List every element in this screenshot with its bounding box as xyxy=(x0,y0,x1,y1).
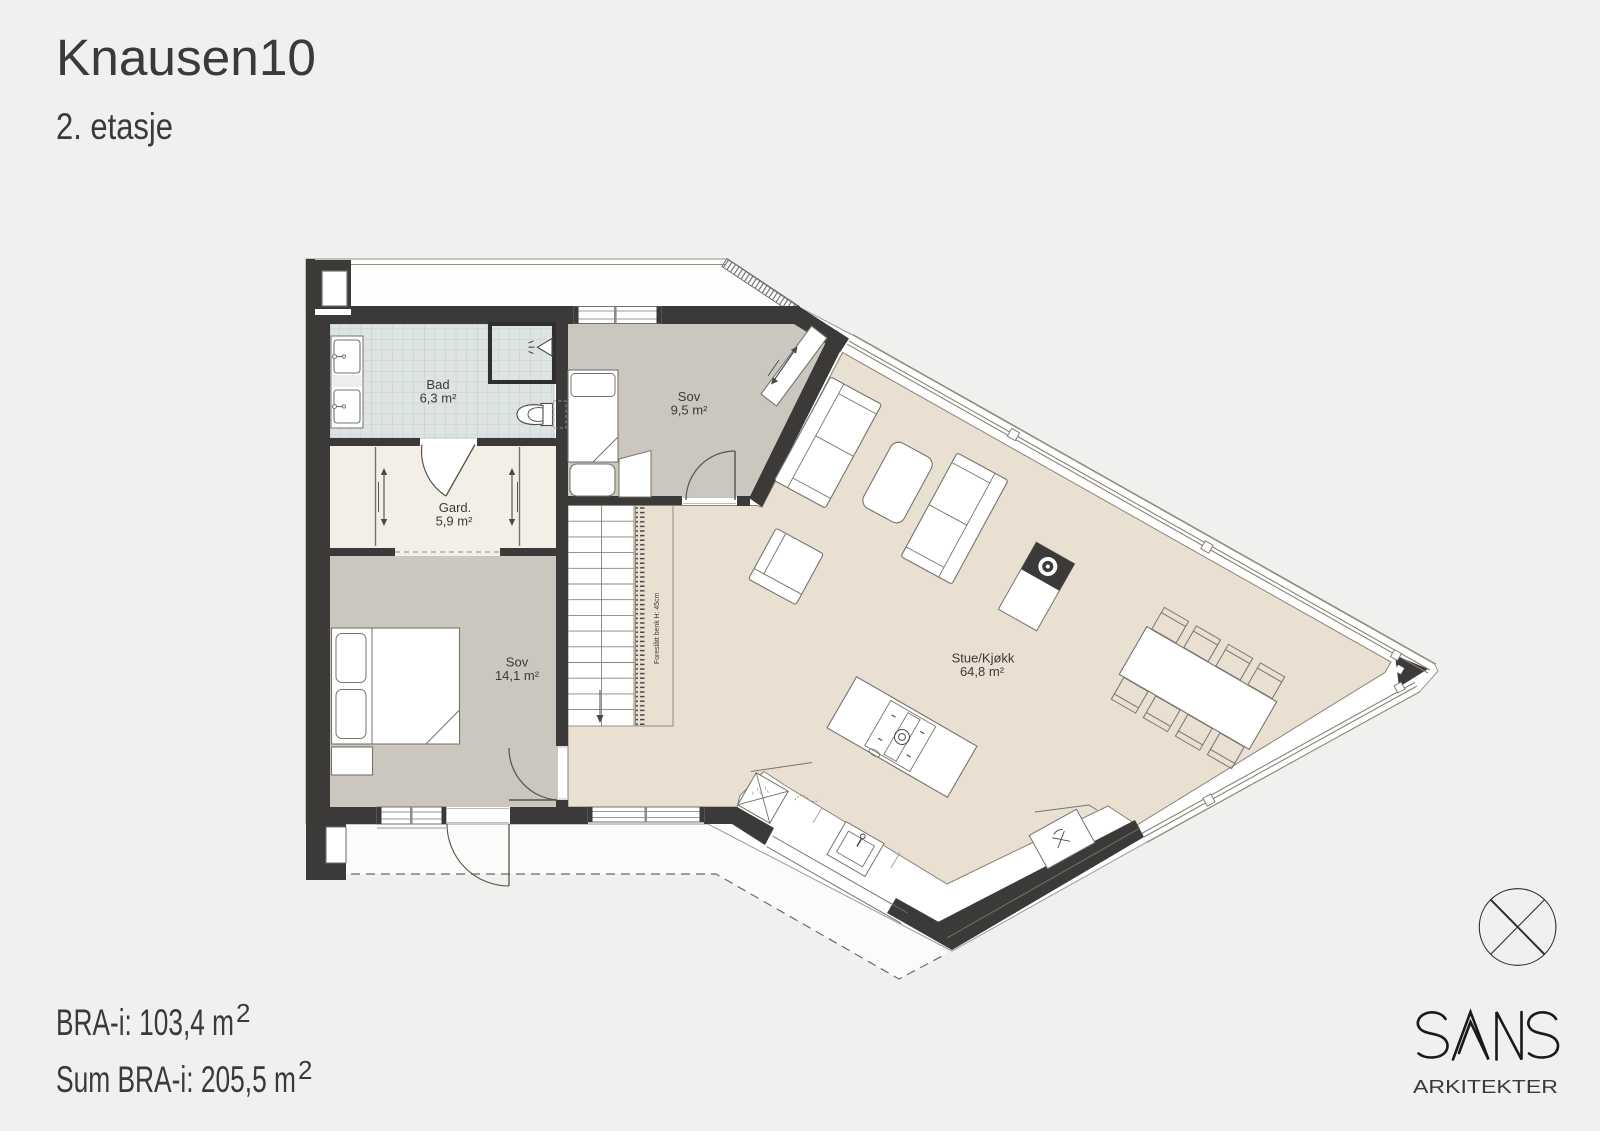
svg-text:64,8 m²: 64,8 m² xyxy=(960,664,1005,679)
svg-text:6,3 m²: 6,3 m² xyxy=(420,391,458,406)
svg-text:Sum BRA-i: 205,5 m: Sum BRA-i: 205,5 m xyxy=(56,1059,296,1100)
svg-text:2: 2 xyxy=(236,998,250,1028)
svg-text:BRA-i: 103,4 m: BRA-i: 103,4 m xyxy=(56,1002,234,1043)
svg-text:2: 2 xyxy=(298,1055,312,1085)
svg-text:5,9 m²: 5,9 m² xyxy=(436,514,474,529)
svg-text:9,5 m²: 9,5 m² xyxy=(671,403,709,418)
svg-text:Foreslått benk H: 45cm: Foreslått benk H: 45cm xyxy=(653,593,661,664)
svg-text:2. etasje: 2. etasje xyxy=(56,106,173,147)
svg-text:14,1 m²: 14,1 m² xyxy=(495,668,540,683)
svg-text:Knausen10: Knausen10 xyxy=(56,29,316,86)
svg-text:ARKITEKTER: ARKITEKTER xyxy=(1413,1076,1558,1097)
